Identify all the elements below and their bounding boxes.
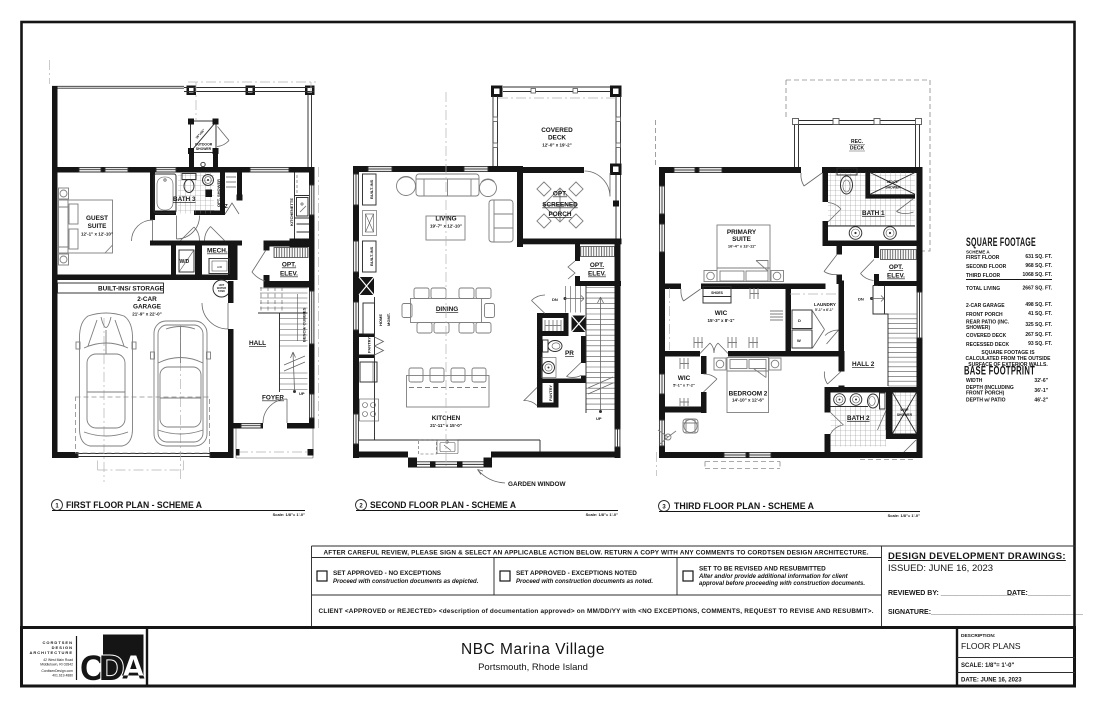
svg-text:PORCH: PORCH: [548, 211, 571, 218]
svg-text:325 SQ. FT.: 325 SQ. FT.: [1025, 322, 1052, 328]
svg-text:RECESSED DECK: RECESSED DECK: [966, 342, 1009, 348]
svg-text:Portsmouth, Rhode Island: Portsmouth, Rhode Island: [478, 662, 588, 673]
svg-text:W/D: W/D: [180, 259, 190, 265]
svg-text:12'-1" x 12'-10": 12'-1" x 12'-10": [81, 232, 113, 237]
svg-text:36"x72": 36"x72": [887, 180, 900, 184]
svg-text:DESCRIPTION:: DESCRIPTION:: [961, 633, 996, 639]
svg-text:BUILT-INS: BUILT-INS: [369, 179, 374, 199]
svg-text:DECK: DECK: [548, 135, 566, 142]
svg-text:FRONT PORCH): FRONT PORCH): [966, 391, 1005, 397]
svg-text:TANK: TANK: [218, 289, 225, 293]
svg-text:PANTRY: PANTRY: [367, 337, 372, 353]
svg-text:Scale: 1/8"= 1'-0": Scale: 1/8"= 1'-0": [273, 512, 306, 517]
svg-text:SECOND FLOOR PLAN - SCHEME A: SECOND FLOOR PLAN - SCHEME A: [370, 500, 516, 510]
svg-text:OUTDOOR: OUTDOOR: [195, 143, 213, 147]
svg-text:SHOWER): SHOWER): [966, 325, 991, 331]
svg-text:AFTER CAREFUL REVIEW, PLEASE S: AFTER CAREFUL REVIEW, PLEASE SIGN & SELE…: [324, 550, 869, 557]
svg-text:SET TO BE REVISED AND RESUBMIT: SET TO BE REVISED AND RESUBMITTED: [699, 566, 826, 573]
svg-text:FIRST FLOOR PLAN - SCHEME A: FIRST FLOOR PLAN - SCHEME A: [66, 500, 202, 510]
svg-text:THIRD FLOOR: THIRD FLOOR: [966, 273, 1001, 279]
svg-text:ARCHITECTURE: ARCHITECTURE: [29, 650, 73, 655]
svg-text:OPT.: OPT.: [553, 191, 567, 198]
svg-text:MGMT.: MGMT.: [386, 313, 391, 326]
svg-text:SHOES: SHOES: [711, 291, 724, 295]
svg-text:SCHEME A: SCHEME A: [966, 250, 990, 255]
svg-text:SCREENED: SCREENED: [542, 202, 578, 209]
svg-text:42 West Main Road: 42 West Main Road: [43, 658, 73, 662]
svg-text:HALL 2: HALL 2: [852, 361, 875, 368]
svg-text:SECOND FLOOR: SECOND FLOOR: [966, 264, 1007, 270]
svg-text:approval before proceeding wit: approval before proceeding with construc…: [699, 581, 865, 587]
svg-text:OPT.: OPT.: [590, 262, 604, 269]
svg-text:Scale: 1/8"= 1'-0": Scale: 1/8"= 1'-0": [586, 512, 619, 517]
svg-text:NBC Marina Village: NBC Marina Village: [461, 641, 605, 658]
svg-text:PR: PR: [565, 350, 574, 357]
svg-text:BUILT-INS: BUILT-INS: [369, 246, 374, 266]
svg-text:HALL: HALL: [249, 340, 266, 347]
svg-text:BEDROOM 2: BEDROOM 2: [729, 391, 768, 398]
svg-text:CordtsenDesign.com: CordtsenDesign.com: [41, 669, 73, 673]
svg-text:36'-1": 36'-1": [1034, 388, 1048, 394]
svg-text:SIGNATURE:____________________: SIGNATURE:______________________________…: [888, 609, 1083, 616]
svg-text:MECH.: MECH.: [207, 248, 228, 255]
svg-text:HOME: HOME: [378, 314, 383, 326]
svg-text:FRONT PORCH: FRONT PORCH: [966, 312, 1003, 318]
svg-text:Proceed with construction docu: Proceed with construction documents as d…: [333, 579, 479, 585]
svg-text:Scale: 1/8"= 1'-0": Scale: 1/8"= 1'-0": [888, 513, 921, 518]
svg-text:16'-4" x 13'-11": 16'-4" x 13'-11": [728, 244, 756, 249]
svg-text:15'-3" x 8'-1": 15'-3" x 8'-1": [708, 318, 735, 323]
svg-text:WIDTH: WIDTH: [966, 378, 983, 384]
svg-text:968 SQ. FT.: 968 SQ. FT.: [1025, 263, 1052, 269]
svg-text:GUEST: GUEST: [86, 215, 108, 222]
svg-text:631 SQ. FT.: 631 SQ. FT.: [1025, 254, 1052, 260]
svg-text:WIC: WIC: [678, 375, 691, 382]
svg-text:THIRD FLOOR PLAN - SCHEME A: THIRD FLOOR PLAN - SCHEME A: [674, 501, 814, 511]
svg-text:GARAGE: GARAGE: [133, 304, 162, 311]
svg-text:SHOWER: SHOWER: [897, 413, 913, 417]
svg-text:DZ: DZ: [221, 204, 228, 210]
svg-text:14'-10" x 12'-6": 14'-10" x 12'-6": [732, 398, 764, 403]
svg-text:32'-6": 32'-6": [1034, 378, 1048, 384]
svg-text:W/I/F: W/I/F: [900, 408, 908, 412]
svg-text:5'-1" x 6'-1": 5'-1" x 6'-1": [815, 308, 834, 312]
svg-text:SET APPROVED - EXCEPTIONS NOTE: SET APPROVED - EXCEPTIONS NOTED: [516, 570, 637, 577]
svg-text:D: D: [99, 649, 124, 688]
svg-text:DESIGN DEVELOPMENT DRAWINGS:: DESIGN DEVELOPMENT DRAWINGS:: [888, 551, 1066, 562]
svg-text:SUITE: SUITE: [732, 236, 752, 243]
svg-text:498 SQ. FT.: 498 SQ. FT.: [1025, 302, 1052, 308]
svg-text:LAUNDRY: LAUNDRY: [814, 302, 836, 307]
svg-text:DN: DN: [858, 297, 864, 302]
svg-text:UP: UP: [299, 391, 305, 396]
svg-text:12'-0" x 19'-2": 12'-0" x 19'-2": [542, 143, 571, 148]
svg-text:BASE FOOTPRINT: BASE FOOTPRINT: [964, 366, 1035, 378]
svg-text:DN: DN: [552, 297, 558, 302]
svg-text:SCALE: 1/8"= 1'-0": SCALE: 1/8"= 1'-0": [961, 663, 1014, 669]
svg-text:FLOOR PLANS: FLOOR PLANS: [961, 641, 1021, 651]
svg-text:SUITE: SUITE: [88, 223, 108, 230]
svg-text:Proceed with construction docu: Proceed with construction documents as n…: [516, 579, 653, 585]
svg-text:ELEV.: ELEV.: [588, 271, 606, 278]
svg-text:BENCH/ CUBBIES: BENCH/ CUBBIES: [302, 307, 307, 342]
svg-text:DINING: DINING: [436, 306, 458, 313]
svg-text:BATH 2: BATH 2: [847, 415, 870, 422]
svg-text:AIR: AIR: [217, 265, 223, 269]
svg-text:FIRST FLOOR: FIRST FLOOR: [966, 255, 1000, 261]
svg-text:401.619.4880: 401.619.4880: [52, 674, 73, 678]
svg-text:BUILT-INS/ STORAGE: BUILT-INS/ STORAGE: [98, 286, 165, 293]
svg-text:21'-9" x 22'-0": 21'-9" x 22'-0": [132, 312, 161, 317]
svg-text:SHOWER: SHOWER: [885, 186, 901, 190]
svg-text:SET APPROVED - NO EXCEPTIONS: SET APPROVED - NO EXCEPTIONS: [333, 570, 442, 577]
svg-text:D: D: [798, 318, 801, 323]
svg-text:BATH 3: BATH 3: [173, 196, 196, 203]
svg-text:2-CAR GARAGE: 2-CAR GARAGE: [966, 303, 1005, 309]
svg-text:ELEV.: ELEV.: [887, 273, 905, 280]
svg-text:GARDEN WINDOW: GARDEN WINDOW: [508, 481, 566, 488]
svg-text:DATE:___________: DATE:___________: [1007, 590, 1071, 597]
svg-text:267 SQ. FT.: 267 SQ. FT.: [1025, 332, 1052, 338]
svg-text:UP: UP: [596, 416, 602, 421]
svg-text:41 SQ. FT.: 41 SQ. FT.: [1028, 311, 1053, 317]
svg-text:2-CAR: 2-CAR: [137, 296, 157, 303]
svg-text:COVERED: COVERED: [541, 127, 573, 134]
svg-text:REVIEWED BY: _________________: REVIEWED BY: ___________________: [888, 590, 1015, 597]
svg-text:KITCHENETTE: KITCHENETTE: [289, 198, 294, 226]
svg-text:Alter and/or provide additiona: Alter and/or provide additional informat…: [698, 574, 849, 580]
svg-text:CLIENT <APPROVED or REJECTED>: CLIENT <APPROVED or REJECTED> <descripti…: [319, 608, 874, 615]
svg-text:Middletown, RI 02842: Middletown, RI 02842: [40, 663, 73, 667]
svg-text:93 SQ. FT.: 93 SQ. FT.: [1028, 341, 1053, 347]
svg-text:BATH 1: BATH 1: [862, 210, 885, 217]
svg-text:PANTRY: PANTRY: [548, 385, 553, 401]
svg-text:PRIMARY: PRIMARY: [727, 229, 757, 236]
svg-text:WIC: WIC: [715, 310, 728, 317]
svg-text:SHOWER: SHOWER: [196, 147, 212, 151]
svg-text:ISSUED: JUNE 16, 2023: ISSUED: JUNE 16, 2023: [888, 563, 993, 574]
svg-text:REC.: REC.: [851, 139, 864, 145]
svg-text:W: W: [797, 338, 801, 343]
svg-text:TOTAL LIVING: TOTAL LIVING: [966, 286, 1000, 292]
svg-text:DECK: DECK: [850, 146, 865, 152]
svg-text:COVERED DECK: COVERED DECK: [966, 333, 1007, 339]
svg-text:1068 SQ. FT.: 1068 SQ. FT.: [1023, 272, 1053, 278]
svg-text:2667 SQ. FT.: 2667 SQ. FT.: [1023, 286, 1053, 292]
svg-text:ELEV.: ELEV.: [280, 271, 298, 278]
svg-text:FOYER: FOYER: [262, 395, 284, 402]
svg-text:46'-2": 46'-2": [1034, 398, 1048, 404]
svg-text:DATE: JUNE 16, 2023: DATE: JUNE 16, 2023: [961, 678, 1022, 684]
svg-text:SQUARE FOOTAGE: SQUARE FOOTAGE: [966, 237, 1036, 249]
svg-text:5'-1" x 7'-2": 5'-1" x 7'-2": [673, 383, 695, 388]
svg-text:OPT.: OPT.: [282, 262, 296, 269]
svg-text:DEPTH w/ PATIO: DEPTH w/ PATIO: [966, 398, 1006, 404]
svg-text:OPT.: OPT.: [889, 264, 903, 271]
